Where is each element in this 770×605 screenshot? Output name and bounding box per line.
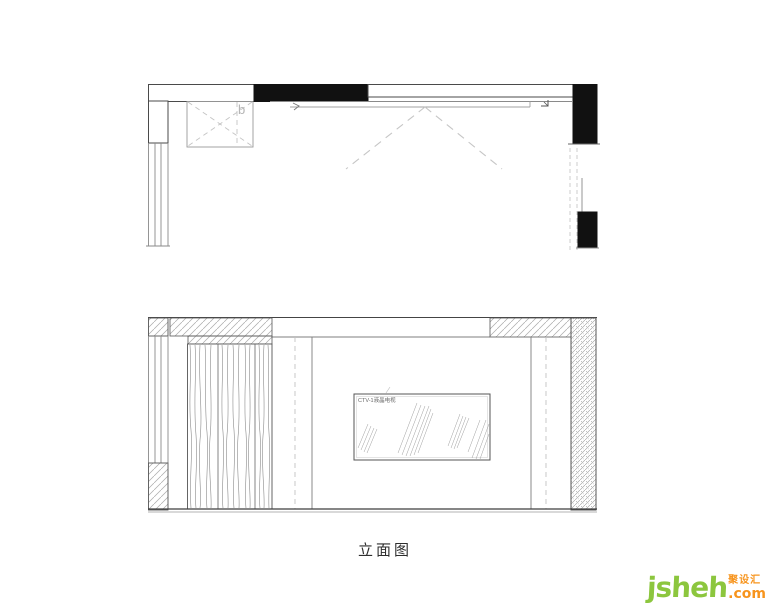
watermark-logo: jsheh 聚设汇 .com (647, 574, 766, 602)
watermark-side: 聚设汇 .com (728, 576, 766, 602)
plan-swing-lines (346, 107, 502, 169)
watermark-cjk: 聚设汇 (728, 576, 761, 586)
elev-left-column-hatch-top (149, 318, 169, 336)
plan-top-wall-right (368, 85, 573, 98)
elev-wood-panel (188, 344, 273, 509)
plan-top-wall-black (254, 85, 368, 102)
plan-track (270, 100, 573, 110)
elev-left-column-hatch-bottom (149, 463, 169, 510)
elevation-caption: 立面图 (330, 539, 440, 560)
floor-plan: b (146, 85, 600, 251)
elev-left-column-window (149, 336, 169, 463)
plan-column-right-top (573, 85, 597, 144)
drawing-canvas: b (0, 0, 770, 605)
elevation-view: CTV-1液晶电视 (148, 318, 597, 513)
plan-cabinet-label: b (238, 102, 245, 117)
elev-right-column (571, 318, 596, 510)
watermark-name: jsheh (646, 574, 728, 602)
plan-track-stop-left (293, 103, 299, 110)
tv-model-label: CTV-1液晶电视 (358, 396, 396, 404)
plan-column-right-bottom (578, 212, 597, 247)
plan-left-wall (149, 101, 169, 143)
cad-drawing: b (0, 0, 770, 605)
elev-ceiling-band-right (490, 318, 571, 337)
watermark-suffix: .com (728, 587, 766, 601)
plan-left-window (146, 143, 170, 246)
plan-top-wall-left (149, 85, 255, 102)
plan-cabinet: b (187, 102, 253, 148)
elev-ceiling-band-left (170, 318, 272, 336)
elev-ceiling-band-left-step (188, 336, 272, 344)
elev-tv: CTV-1液晶电视 (354, 387, 490, 460)
